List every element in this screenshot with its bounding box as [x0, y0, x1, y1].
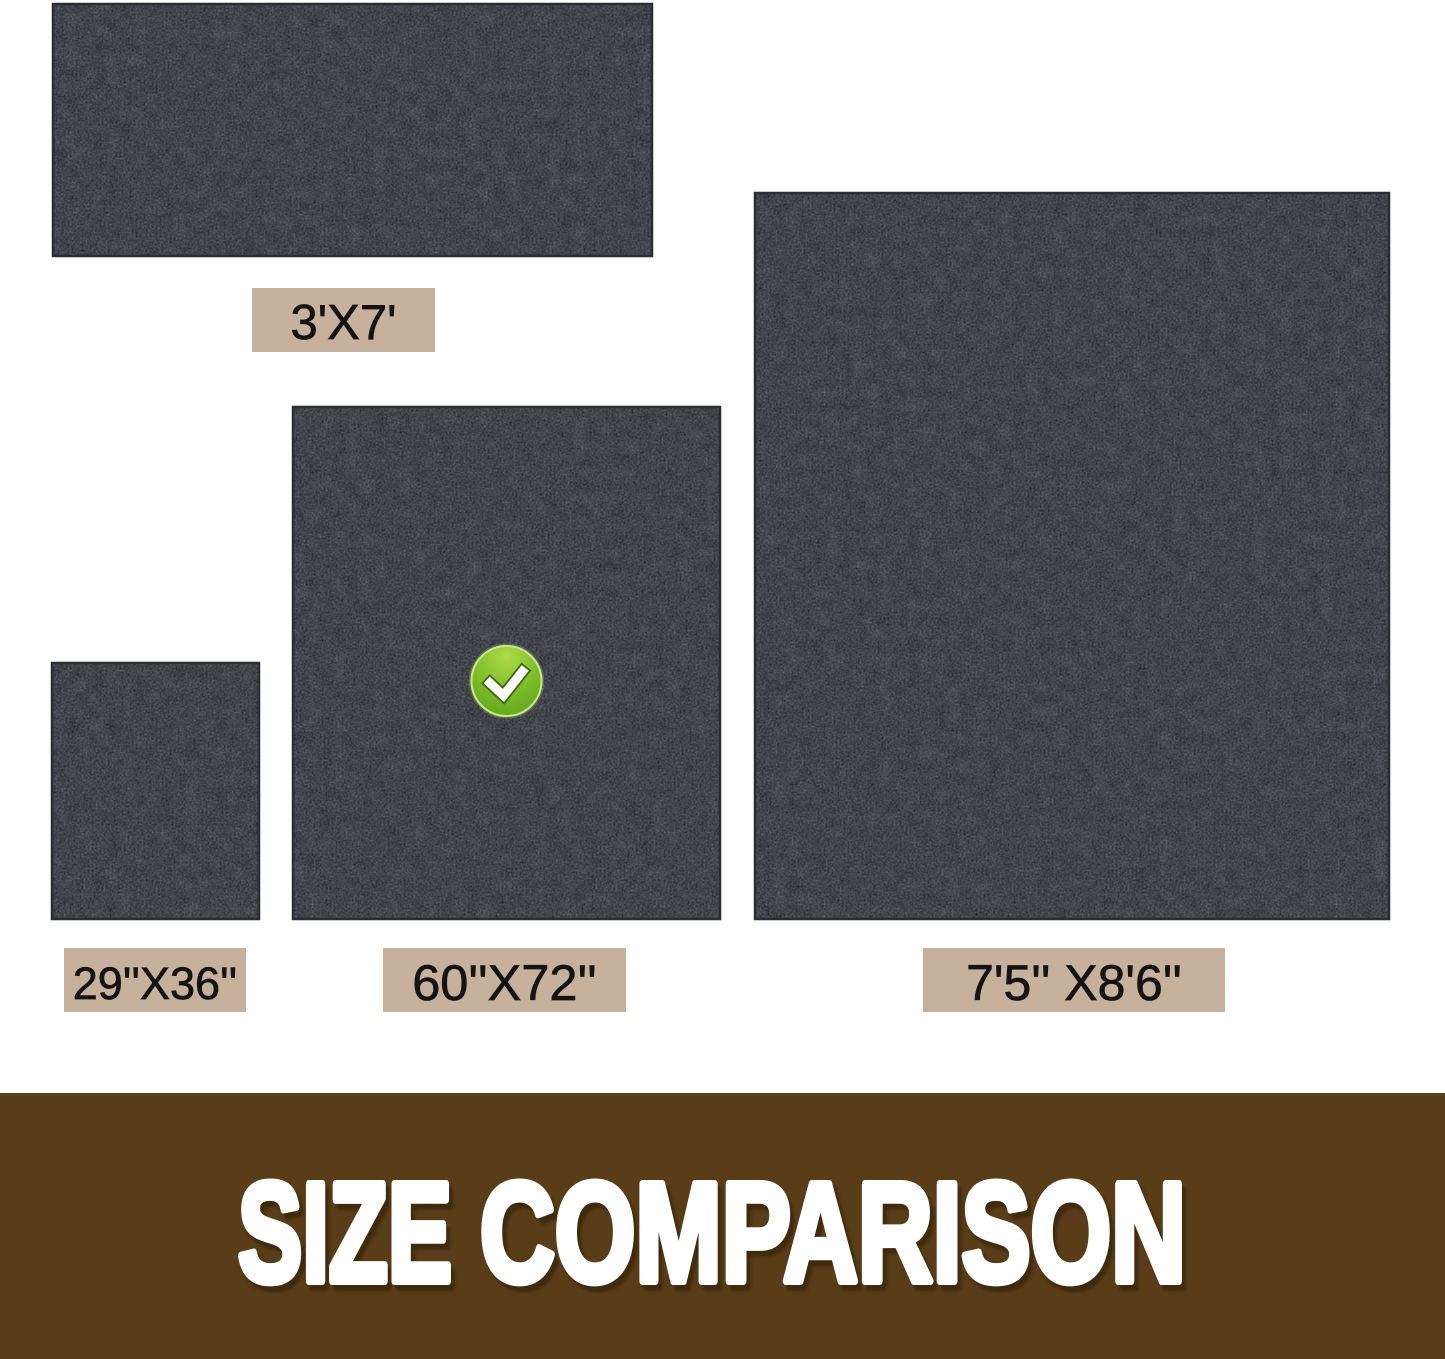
- svg-text:3'X7': 3'X7': [291, 296, 397, 350]
- svg-text:COMPARISON: COMPARISON: [480, 1153, 1186, 1311]
- svg-text:SIZE: SIZE: [238, 1153, 452, 1311]
- svg-text:7'5'' X8'6'': 7'5'' X8'6'': [966, 955, 1182, 1011]
- svg-text:60''X72'': 60''X72'': [412, 954, 597, 1011]
- svg-text:29''X36'': 29''X36'': [73, 958, 238, 1009]
